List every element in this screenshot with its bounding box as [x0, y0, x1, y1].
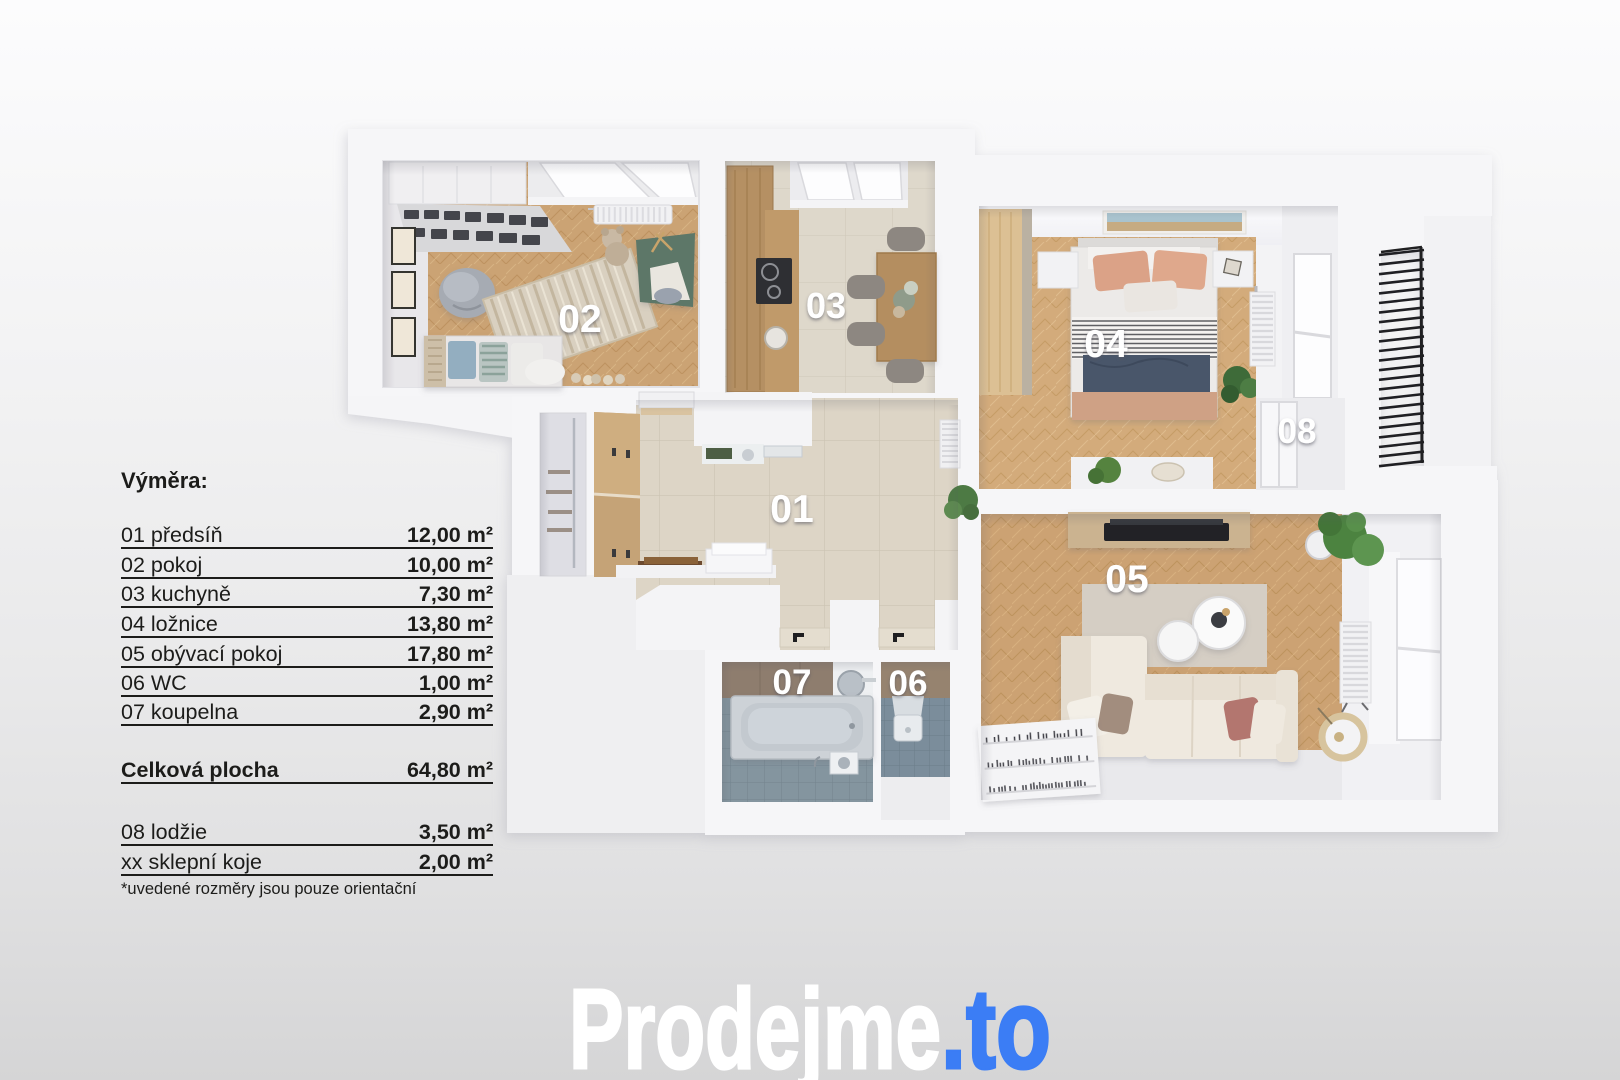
svg-text:Prodejme: Prodejme: [569, 966, 941, 1080]
svg-text:06 WC: 06 WC: [121, 671, 187, 695]
svg-text:08 lodžie: 08 lodžie: [121, 820, 207, 844]
svg-text:7,30 m²: 7,30 m²: [419, 582, 493, 606]
svg-text:xx sklepní koje: xx sklepní koje: [121, 850, 262, 874]
svg-text:03: 03: [806, 285, 846, 326]
svg-text:02 pokoj: 02 pokoj: [121, 553, 202, 577]
svg-text:Výměra:: Výměra:: [121, 468, 208, 493]
svg-text:01: 01: [770, 488, 813, 531]
svg-text:05 obývací pokoj: 05 obývací pokoj: [121, 642, 282, 666]
svg-text:1,00 m²: 1,00 m²: [419, 671, 493, 695]
svg-text:01 předsíň: 01 předsíň: [121, 523, 223, 547]
svg-text:.to: .to: [941, 966, 1051, 1080]
svg-text:64,80 m²: 64,80 m²: [407, 758, 493, 782]
svg-text:05: 05: [1105, 558, 1148, 601]
svg-text:Celková plocha: Celková plocha: [121, 758, 280, 782]
svg-text:03 kuchyně: 03 kuchyně: [121, 582, 231, 606]
svg-text:12,00 m²: 12,00 m²: [407, 523, 493, 547]
svg-text:07 koupelna: 07 koupelna: [121, 700, 238, 724]
svg-text:3,50 m²: 3,50 m²: [419, 820, 493, 844]
svg-text:04 ložnice: 04 ložnice: [121, 612, 218, 636]
svg-text:*uvedené rozměry jsou pouze or: *uvedené rozměry jsou pouze orientační: [121, 880, 417, 898]
svg-text:04: 04: [1084, 323, 1128, 366]
svg-text:2,00 m²: 2,00 m²: [419, 850, 493, 874]
svg-text:17,80 m²: 17,80 m²: [407, 642, 493, 666]
svg-text:02: 02: [558, 298, 601, 341]
svg-text:08: 08: [1278, 412, 1317, 451]
svg-text:10,00 m²: 10,00 m²: [407, 553, 493, 577]
svg-text:13,80 m²: 13,80 m²: [407, 612, 493, 636]
svg-text:2,90 m²: 2,90 m²: [419, 700, 493, 724]
